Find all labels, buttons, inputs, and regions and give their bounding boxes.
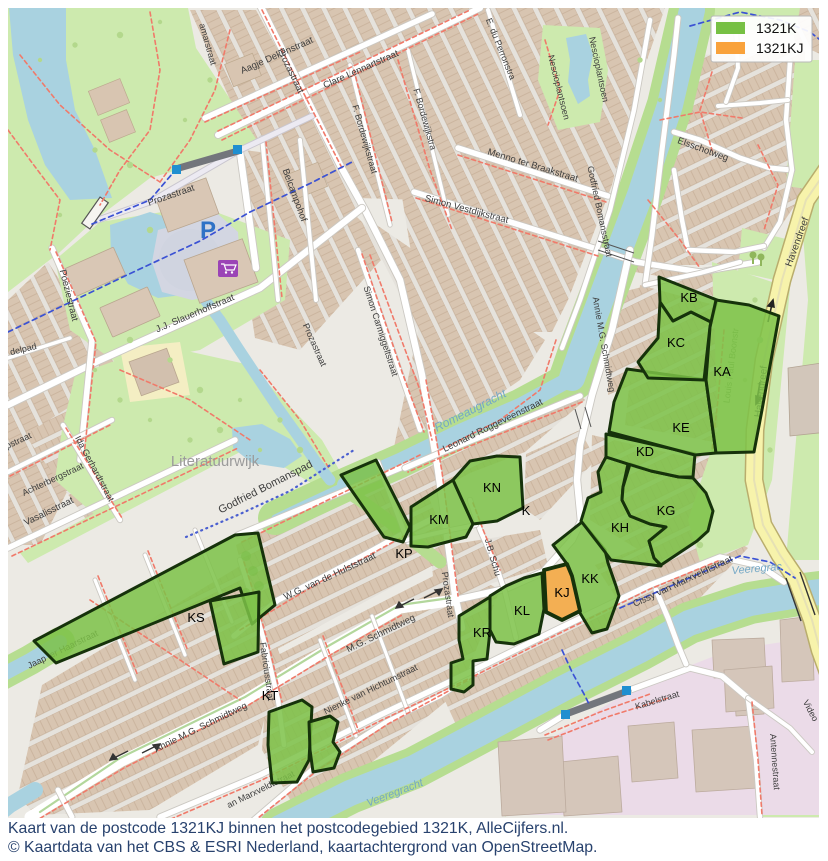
svg-text:KA: KA: [713, 364, 731, 379]
svg-text:KS: KS: [187, 610, 205, 625]
svg-text:KC: KC: [667, 335, 685, 350]
svg-text:1321KJ: 1321KJ: [756, 40, 803, 56]
svg-text:KB: KB: [680, 290, 697, 305]
svg-text:KT: KT: [262, 688, 279, 703]
svg-text:KR: KR: [473, 625, 491, 640]
svg-text:KH: KH: [611, 520, 629, 535]
svg-text:KL: KL: [514, 603, 530, 618]
svg-text:KK: KK: [581, 571, 599, 586]
svg-text:1321K: 1321K: [756, 20, 797, 36]
svg-text:Literatuurwijk: Literatuurwijk: [171, 453, 260, 470]
svg-text:KD: KD: [636, 444, 654, 459]
svg-text:KP: KP: [395, 546, 412, 561]
svg-text:KJ: KJ: [554, 585, 569, 600]
svg-text:KE: KE: [672, 420, 690, 435]
svg-text:P: P: [200, 217, 216, 244]
svg-text:KG: KG: [657, 503, 676, 518]
svg-text:KM: KM: [429, 512, 449, 527]
svg-text:K: K: [522, 503, 531, 518]
svg-text:KN: KN: [483, 480, 501, 495]
